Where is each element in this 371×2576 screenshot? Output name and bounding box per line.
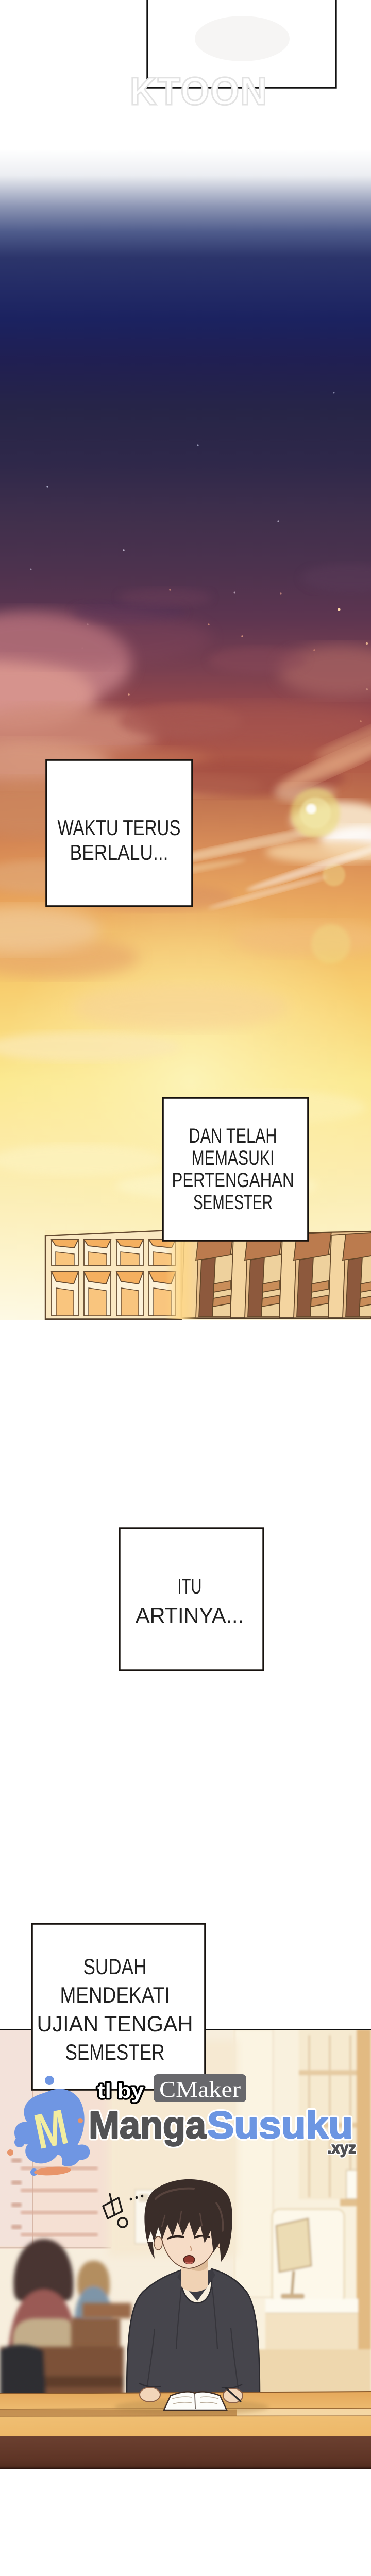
svg-text:ARTINYA...: ARTINYA... (136, 1603, 244, 1628)
svg-text:UJIAN TENGAH: UJIAN TENGAH (37, 2012, 193, 2037)
svg-text:MENDEKATI: MENDEKATI (60, 1983, 170, 2008)
svg-text:.xyz: .xyz (327, 2139, 356, 2157)
svg-text:KTOON: KTOON (130, 70, 268, 113)
svg-text:SEMESTER: SEMESTER (65, 2040, 165, 2065)
svg-text:PERTENGAHAN: PERTENGAHAN (172, 1169, 294, 1192)
svg-text:DAN TELAH: DAN TELAH (189, 1125, 277, 1147)
svg-text:Manga: Manga (89, 2104, 207, 2146)
svg-text:SUDAH: SUDAH (83, 1955, 147, 1979)
svg-text:MEMASUKI: MEMASUKI (192, 1147, 275, 1170)
svg-text:WAKTU TERUS: WAKTU TERUS (58, 816, 181, 840)
svg-text:BERLALU...: BERLALU... (70, 840, 168, 865)
svg-text:SEMESTER: SEMESTER (193, 1191, 273, 1214)
svg-text:ITU: ITU (178, 1574, 202, 1598)
svg-text:CMaker: CMaker (159, 2077, 241, 2102)
svg-text:tl by: tl by (97, 2080, 144, 2103)
